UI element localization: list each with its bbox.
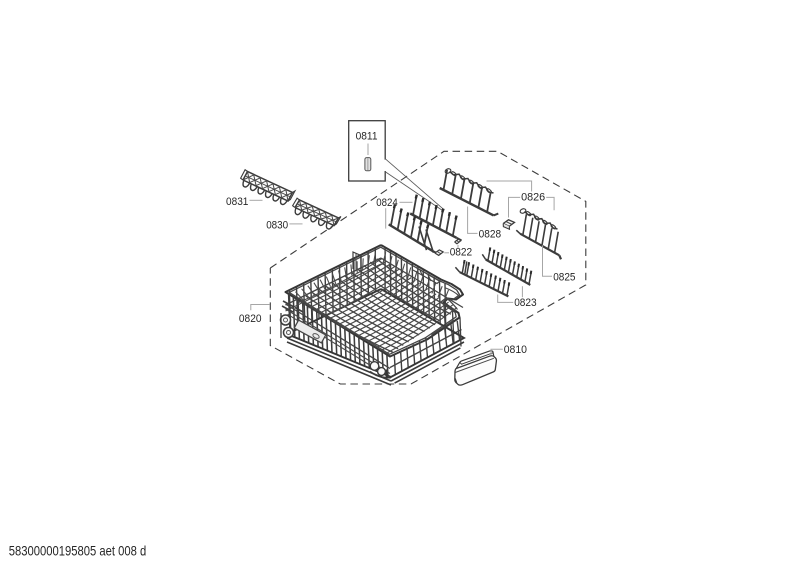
svg-text:0810: 0810	[504, 344, 527, 356]
svg-text:0823: 0823	[514, 297, 537, 309]
svg-text:0830: 0830	[266, 219, 288, 231]
svg-text:0811: 0811	[356, 130, 378, 142]
svg-text:0828: 0828	[479, 228, 502, 240]
svg-text:0825: 0825	[553, 271, 575, 283]
svg-text:0822: 0822	[450, 247, 473, 259]
svg-text:0820: 0820	[239, 313, 262, 325]
svg-text:0824: 0824	[376, 197, 398, 209]
svg-text:58300000195805 aet 008 d: 58300000195805 aet 008 d	[9, 543, 147, 559]
svg-text:0831: 0831	[226, 196, 248, 208]
svg-text:0826: 0826	[521, 192, 545, 204]
